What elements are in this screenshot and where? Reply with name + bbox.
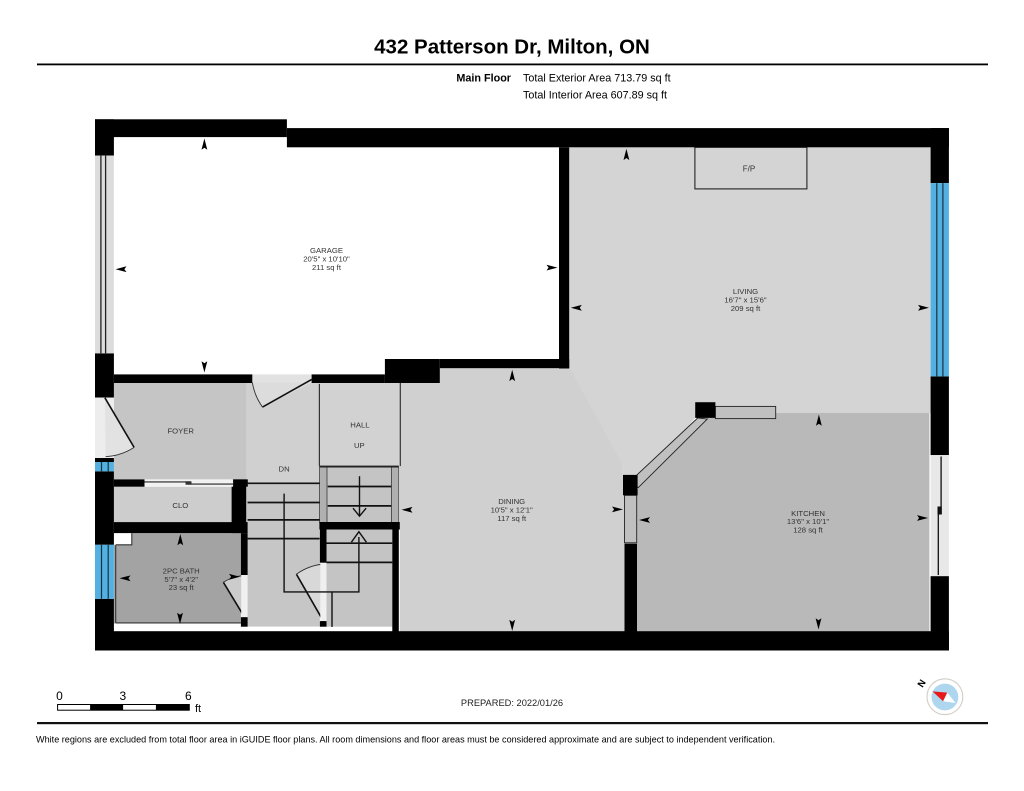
svg-text:23 sq ft: 23 sq ft [169, 583, 195, 592]
svg-text:6: 6 [185, 689, 192, 703]
svg-text:117 sq ft: 117 sq ft [497, 514, 527, 523]
svg-text:0: 0 [56, 689, 63, 703]
svg-text:211 sq ft: 211 sq ft [312, 263, 342, 272]
svg-text:F/P: F/P [743, 164, 755, 173]
svg-text:HALL: HALL [350, 421, 370, 430]
svg-text:UP: UP [354, 441, 365, 450]
svg-text:Total Exterior Area 713.79 sq: Total Exterior Area 713.79 sq ft [523, 73, 671, 85]
svg-text:DN: DN [279, 464, 290, 473]
svg-text:128 sq ft: 128 sq ft [793, 526, 823, 535]
svg-text:209 sq ft: 209 sq ft [731, 304, 761, 313]
svg-text:3: 3 [120, 689, 127, 703]
svg-text:White regions are excluded fro: White regions are excluded from total fl… [36, 735, 775, 745]
svg-text:Main Floor: Main Floor [456, 73, 511, 85]
svg-text:ft: ft [195, 703, 201, 715]
svg-text:FOYER: FOYER [167, 426, 194, 435]
svg-text:PREPARED: 2022/01/26: PREPARED: 2022/01/26 [461, 698, 563, 708]
svg-text:Total Interior Area 607.89 sq: Total Interior Area 607.89 sq ft [523, 90, 667, 102]
svg-text:432 Patterson Dr, Milton, ON: 432 Patterson Dr, Milton, ON [374, 36, 650, 59]
svg-text:CLO: CLO [172, 501, 188, 510]
